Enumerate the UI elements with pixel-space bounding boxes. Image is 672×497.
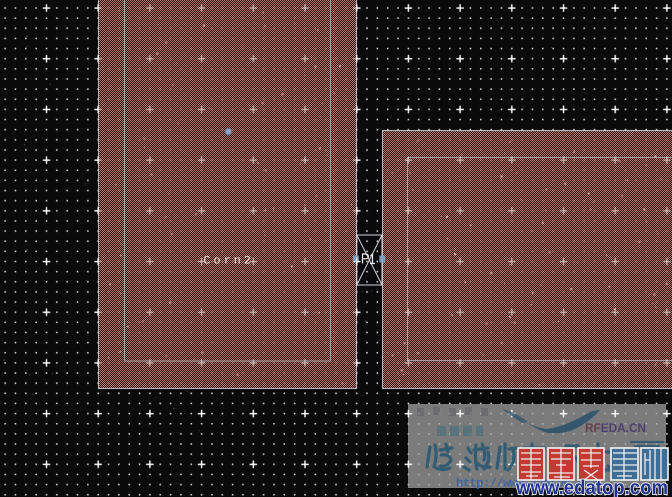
svg-text:www.edatop.com: www.edatop.com	[515, 477, 668, 497]
svg-text:RFEDA.CN: RFEDA.CN	[585, 421, 646, 435]
